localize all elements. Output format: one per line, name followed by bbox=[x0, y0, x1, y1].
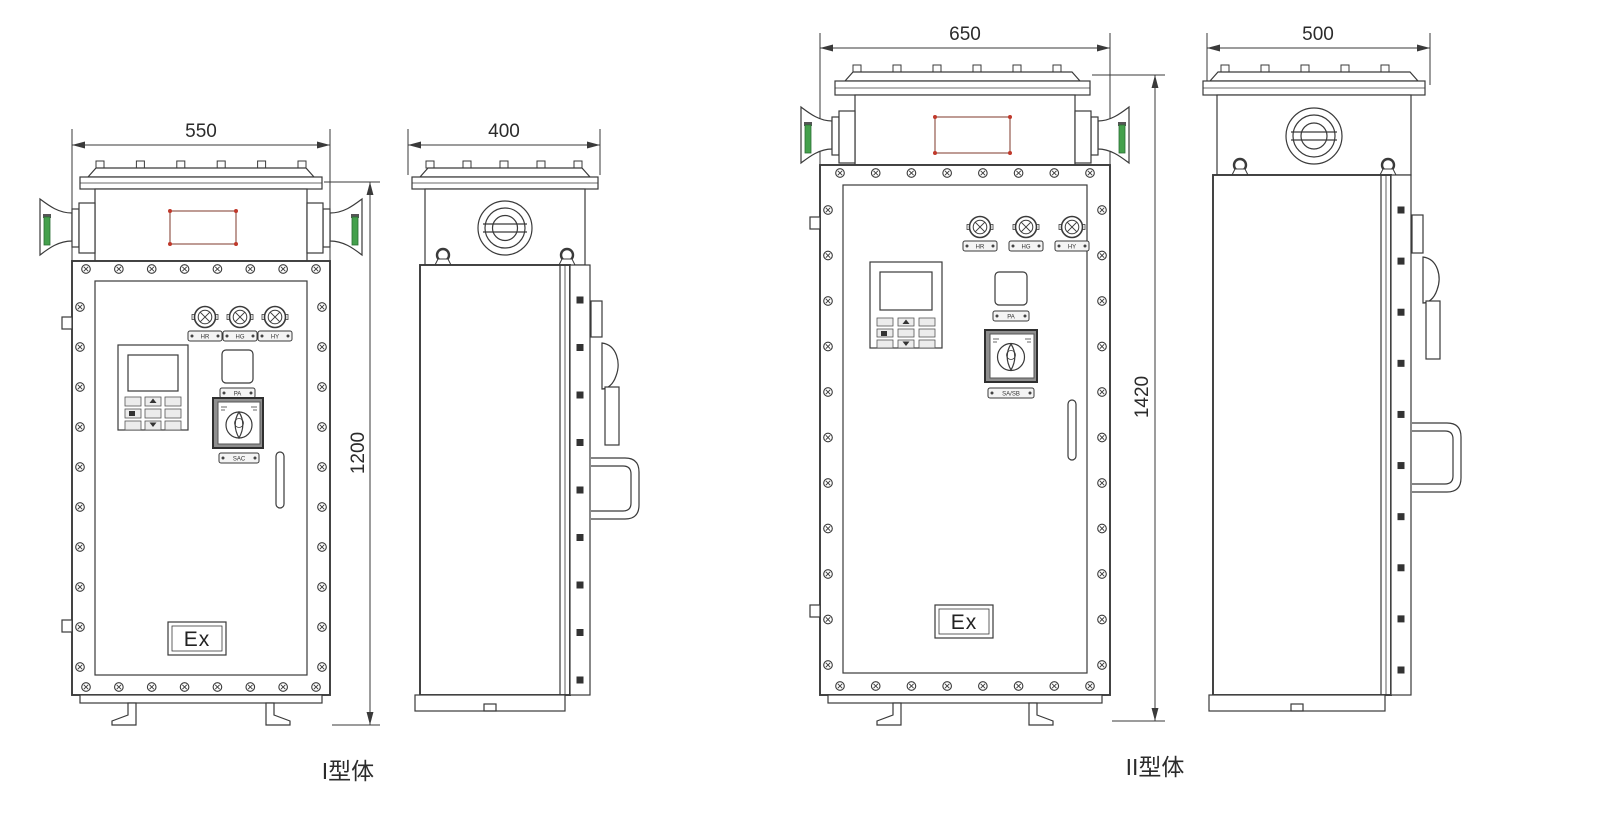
cabinet-body bbox=[1213, 175, 1411, 695]
cable-gland-left bbox=[40, 199, 95, 255]
svg-text:PA: PA bbox=[1007, 315, 1015, 321]
hinge-tab-upper bbox=[810, 217, 820, 229]
height-dimension: 1200 bbox=[324, 182, 380, 725]
svg-text:SA/SB: SA/SB bbox=[1002, 392, 1020, 398]
door-handle bbox=[591, 458, 639, 519]
cable-gland-right bbox=[307, 199, 362, 255]
depth-dim-label: 500 bbox=[1302, 24, 1334, 45]
gland-pin-green bbox=[44, 217, 50, 245]
ex-marking: Ex bbox=[935, 605, 993, 638]
top-cover bbox=[835, 65, 1090, 95]
svg-text:HY: HY bbox=[271, 335, 279, 341]
depth-dim-label: 400 bbox=[488, 121, 520, 142]
svg-text:HR: HR bbox=[976, 245, 985, 251]
door-latch-lever bbox=[591, 301, 619, 445]
cable-gland-left bbox=[801, 107, 855, 163]
cabinet-body bbox=[420, 265, 590, 695]
base bbox=[1209, 695, 1385, 711]
indicator-lights: HR HG HY bbox=[188, 307, 292, 342]
door-handle bbox=[1412, 423, 1461, 492]
display-module bbox=[118, 345, 188, 430]
svg-text:SAC: SAC bbox=[233, 457, 246, 463]
indicator-lights: HR HG HY bbox=[963, 217, 1089, 252]
foot-right bbox=[1029, 703, 1053, 725]
height-dim-label: 1200 bbox=[348, 432, 369, 474]
svg-text:HY: HY bbox=[1068, 245, 1076, 251]
button-label-plate: PA bbox=[993, 311, 1029, 321]
indicator-label-hg: HG bbox=[1009, 241, 1043, 251]
display-module bbox=[870, 262, 942, 348]
type1-front-view: 550 1200 bbox=[30, 95, 390, 760]
foot-left bbox=[112, 703, 136, 725]
drawing-canvas: 550 1200 bbox=[0, 0, 1616, 834]
key-enter-icon bbox=[881, 331, 887, 336]
svg-text:HR: HR bbox=[201, 335, 210, 341]
indicator-label-hr: HR bbox=[188, 331, 222, 341]
caption-type2: II型体 bbox=[1075, 748, 1235, 782]
switch-label-plate: SA/SB bbox=[988, 388, 1034, 398]
top-cover bbox=[80, 161, 322, 189]
type2-side-view: 500 bbox=[1195, 5, 1480, 765]
foot-left bbox=[877, 703, 901, 725]
ex-marking: Ex bbox=[168, 622, 226, 655]
indicator-label-hr: HR bbox=[963, 241, 997, 251]
gland-pin-green bbox=[805, 125, 811, 153]
base-and-feet bbox=[828, 695, 1102, 725]
top-cover bbox=[1203, 65, 1425, 95]
indicator-label-hy: HY bbox=[1055, 241, 1089, 251]
base bbox=[415, 695, 565, 711]
svg-text:Ex: Ex bbox=[951, 611, 978, 634]
height-dim-label: 1420 bbox=[1132, 376, 1153, 418]
junction-box bbox=[425, 189, 585, 265]
svg-text:HG: HG bbox=[1022, 245, 1031, 251]
caption-type1: I型体 bbox=[283, 752, 413, 786]
base-and-feet bbox=[80, 695, 322, 725]
hinge-tab-lower bbox=[810, 605, 820, 617]
svg-text:Ex: Ex bbox=[184, 628, 211, 651]
pa-button: PA bbox=[220, 350, 255, 398]
indicator-label-hg: HG bbox=[223, 331, 257, 341]
junction-box bbox=[1217, 95, 1411, 175]
hinge-tab-lower bbox=[62, 620, 72, 632]
top-cover bbox=[412, 161, 598, 189]
type2-front-view: 650 1420 bbox=[795, 5, 1175, 765]
pa-button: PA bbox=[993, 272, 1029, 321]
lid-bolts bbox=[96, 161, 306, 168]
junction-box bbox=[855, 95, 1075, 165]
svg-text:HG: HG bbox=[236, 335, 245, 341]
width-dim-label: 550 bbox=[185, 121, 217, 142]
hinge-tab-upper bbox=[62, 317, 72, 329]
rotary-switch: SA/SB bbox=[985, 330, 1037, 398]
rotary-switch: SAC bbox=[213, 398, 263, 463]
button-label-plate: PA bbox=[220, 388, 255, 398]
indicator-label-hy: HY bbox=[258, 331, 292, 341]
junction-box bbox=[95, 189, 307, 261]
cable-gland-right bbox=[1075, 107, 1129, 163]
switch-label-plate: SAC bbox=[219, 453, 259, 463]
foot-right bbox=[266, 703, 290, 725]
width-dim-label: 650 bbox=[949, 24, 981, 45]
svg-text:PA: PA bbox=[234, 392, 242, 398]
key-enter-icon bbox=[129, 411, 135, 416]
type1-side-view: 400 bbox=[395, 95, 660, 760]
door-latch-lever bbox=[1412, 215, 1440, 359]
